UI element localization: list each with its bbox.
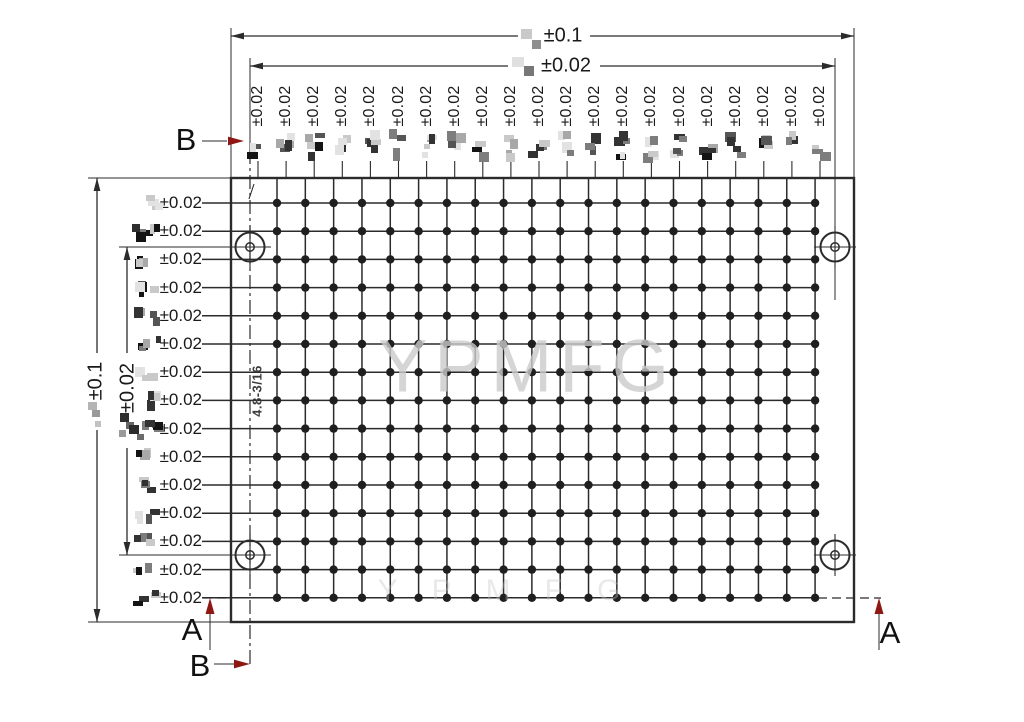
grid-hole-dot — [811, 312, 819, 320]
row-pitch-label: ±0.02 — [138, 278, 202, 298]
grid-hole-dot — [726, 453, 734, 461]
grid-hole-dot — [641, 537, 649, 545]
redacted-value — [422, 152, 428, 158]
grid-hole-dot — [556, 227, 564, 235]
column-pitch-label: ±0.02 — [277, 86, 295, 127]
grid-hole-dot — [386, 255, 394, 263]
grid-hole-dot — [273, 509, 281, 517]
dim-label-overall-width: ±0.1 — [542, 25, 585, 48]
grid-hole-dot — [754, 481, 762, 489]
grid-hole-dot — [669, 424, 677, 432]
column-pitch-label: ±0.02 — [755, 86, 773, 127]
grid-hole-dot — [556, 537, 564, 545]
grid-hole-dot — [528, 199, 536, 207]
column-pitch-label: ±0.02 — [642, 86, 660, 127]
column-pitch-label: ±0.02 — [305, 86, 323, 127]
grid-hole-dot — [499, 537, 507, 545]
grid-hole-dot — [528, 255, 536, 263]
grid-hole-dot — [613, 424, 621, 432]
grid-hole-dot — [698, 255, 706, 263]
redacted-value — [338, 138, 347, 145]
redacted-value — [479, 152, 489, 162]
column-pitch-label: ±0.02 — [614, 86, 632, 127]
grid-hole-dot — [783, 424, 791, 432]
grid-hole-dot — [613, 453, 621, 461]
grid-hole-dot — [386, 227, 394, 235]
redacted-value — [137, 434, 144, 440]
redacted-value — [145, 420, 155, 426]
redacted-value — [156, 336, 161, 344]
redacted-value — [585, 143, 595, 150]
redacted-value — [648, 151, 658, 157]
grid-hole-dot — [528, 312, 536, 320]
grid-hole-dot — [669, 481, 677, 489]
grid-hole-dot — [783, 283, 791, 291]
redacted-value — [146, 514, 152, 525]
grid-hole-dot — [726, 312, 734, 320]
grid-hole-dot — [584, 283, 592, 291]
grid-hole-dot — [414, 537, 422, 545]
grid-hole-dot — [301, 255, 309, 263]
redacted-value — [620, 152, 625, 159]
grid-hole-dot — [811, 283, 819, 291]
redacted-value — [146, 195, 155, 201]
grid-hole-dot — [754, 396, 762, 404]
grid-hole-dot — [584, 227, 592, 235]
redacted-value — [429, 134, 435, 144]
grid-hole-dot — [471, 283, 479, 291]
grid-hole-dot — [301, 312, 309, 320]
grid-hole-dot — [443, 255, 451, 263]
redacted-value — [147, 373, 158, 381]
redacted-value — [152, 590, 159, 596]
redacted-value — [619, 131, 627, 140]
grid-hole-dot — [698, 594, 706, 602]
column-pitch-label: ±0.02 — [249, 86, 267, 127]
grid-hole-dot — [443, 481, 451, 489]
grid-hole-dot — [783, 199, 791, 207]
grid-hole-dot — [358, 453, 366, 461]
section-marker-b-top: B — [176, 122, 197, 158]
grid-hole-dot — [273, 453, 281, 461]
redacted-value — [447, 131, 456, 141]
redacted-value — [510, 139, 518, 149]
grid-hole-dot — [754, 368, 762, 376]
redacted-value — [512, 57, 524, 67]
grid-hole-dot — [329, 340, 337, 348]
row-pitch-label: ±0.02 — [138, 306, 202, 326]
grid-hole-dot — [358, 199, 366, 207]
redacted-value — [455, 133, 466, 143]
redacted-value — [521, 29, 532, 39]
grid-hole-dot — [613, 227, 621, 235]
grid-hole-dot — [613, 509, 621, 517]
grid-hole-dot — [698, 312, 706, 320]
grid-hole-dot — [471, 509, 479, 517]
grid-hole-dot — [273, 537, 281, 545]
grid-hole-dot — [358, 255, 366, 263]
column-pitch-label: ±0.02 — [361, 86, 379, 127]
grid-hole-dot — [358, 481, 366, 489]
column-pitch-label: ±0.02 — [811, 86, 829, 127]
grid-hole-dot — [301, 594, 309, 602]
redacted-value — [134, 535, 141, 542]
redacted-value — [761, 136, 771, 145]
grid-hole-dot — [726, 227, 734, 235]
grid-hole-dot — [584, 565, 592, 573]
grid-hole-dot — [329, 368, 337, 376]
redacted-value — [528, 151, 538, 157]
grid-hole-dot — [273, 396, 281, 404]
grid-hole-dot — [641, 312, 649, 320]
redacted-value — [134, 307, 143, 317]
redacted-value — [92, 410, 100, 417]
redacted-value — [786, 137, 792, 146]
grid-hole-dot — [471, 312, 479, 320]
grid-hole-dot — [499, 565, 507, 573]
grid-hole-dot — [726, 424, 734, 432]
grid-hole-dot — [386, 424, 394, 432]
grid-hole-dot — [641, 255, 649, 263]
redacted-value — [143, 339, 150, 348]
redacted-value — [129, 425, 139, 434]
grid-hole-dot — [301, 283, 309, 291]
redacted-value — [737, 152, 746, 158]
column-pitch-label: ±0.02 — [671, 86, 689, 127]
redacted-value — [135, 282, 145, 292]
dim-label-overall-height: ±0.1 — [85, 360, 108, 403]
grid-hole-dot — [641, 481, 649, 489]
grid-hole-dot — [556, 255, 564, 263]
grid-hole-dot — [414, 312, 422, 320]
grid-hole-dot — [726, 340, 734, 348]
column-pitch-label: ±0.02 — [727, 86, 745, 127]
redacted-value — [307, 142, 315, 149]
grid-hole-dot — [443, 199, 451, 207]
section-b-arrow-bottom — [234, 660, 250, 669]
grid-hole-dot — [726, 509, 734, 517]
grid-hole-dot — [669, 509, 677, 517]
grid-hole-dot — [754, 565, 762, 573]
grid-hole-dot — [301, 227, 309, 235]
grid-hole-dot — [811, 255, 819, 263]
section-a-arrow-right — [875, 598, 884, 614]
grid-hole-dot — [528, 227, 536, 235]
redacted-value — [95, 421, 101, 427]
grid-hole-dot — [584, 453, 592, 461]
grid-hole-dot — [811, 368, 819, 376]
grid-hole-dot — [613, 255, 621, 263]
redacted-value — [567, 150, 574, 156]
grid-hole-dot — [471, 565, 479, 573]
grid-hole-dot — [811, 453, 819, 461]
redacted-value — [305, 134, 313, 142]
redacted-value — [136, 259, 143, 267]
grid-hole-dot — [698, 424, 706, 432]
grid-hole-dot — [669, 312, 677, 320]
redacted-value — [137, 513, 142, 524]
grid-hole-dot — [329, 537, 337, 545]
grid-hole-dot — [329, 255, 337, 263]
grid-hole-dot — [273, 481, 281, 489]
grid-hole-dot — [358, 312, 366, 320]
grid-hole-dot — [669, 453, 677, 461]
grid-hole-dot — [698, 396, 706, 404]
grid-hole-dot — [556, 509, 564, 517]
grid-hole-dot — [698, 481, 706, 489]
grid-hole-dot — [358, 537, 366, 545]
grid-hole-dot — [556, 424, 564, 432]
grid-hole-dot — [783, 396, 791, 404]
redacted-value — [276, 139, 284, 148]
section-a-arrow-left — [206, 598, 215, 614]
grid-hole-dot — [329, 565, 337, 573]
grid-hole-dot — [329, 594, 337, 602]
grid-hole-dot — [443, 227, 451, 235]
redacted-value — [250, 143, 256, 152]
column-pitch-label: ±0.02 — [699, 86, 717, 127]
grid-hole-dot — [754, 453, 762, 461]
grid-hole-dot — [669, 199, 677, 207]
watermark-faint: YPMFG — [378, 574, 655, 608]
grid-hole-dot — [783, 227, 791, 235]
grid-hole-dot — [556, 312, 564, 320]
grid-hole-dot — [443, 453, 451, 461]
redacted-value — [285, 140, 293, 151]
grid-hole-dot — [358, 424, 366, 432]
column-pitch-label: ±0.02 — [502, 86, 520, 127]
grid-hole-dot — [641, 424, 649, 432]
grid-hole-dot — [613, 565, 621, 573]
grid-hole-dot — [301, 537, 309, 545]
grid-hole-dot — [414, 424, 422, 432]
column-pitch-label: ±0.02 — [390, 86, 408, 127]
grid-hole-dot — [386, 537, 394, 545]
dimension-arrowhead — [124, 542, 131, 555]
grid-hole-dot — [301, 368, 309, 376]
grid-hole-dot — [414, 453, 422, 461]
section-marker-b-bottom: B — [190, 648, 211, 684]
grid-hole-dot — [556, 453, 564, 461]
grid-hole-dot — [443, 312, 451, 320]
grid-hole-dot — [499, 255, 507, 263]
grid-hole-dot — [698, 199, 706, 207]
grid-hole-dot — [754, 312, 762, 320]
grid-hole-dot — [273, 594, 281, 602]
redacted-value — [133, 601, 143, 607]
grid-hole-dot — [386, 283, 394, 291]
grid-hole-dot — [584, 537, 592, 545]
grid-hole-dot — [783, 594, 791, 602]
grid-hole-dot — [613, 481, 621, 489]
grid-hole-dot — [811, 396, 819, 404]
grid-hole-dot — [641, 565, 649, 573]
grid-hole-dot — [556, 481, 564, 489]
grid-hole-dot — [528, 424, 536, 432]
redacted-value — [389, 129, 397, 138]
grid-hole-dot — [641, 283, 649, 291]
grid-hole-dot — [783, 481, 791, 489]
grid-hole-dot — [726, 255, 734, 263]
grid-hole-dot — [499, 227, 507, 235]
dim-label-hole-span-width: ±0.02 — [539, 55, 593, 78]
grid-hole-dot — [273, 424, 281, 432]
redacted-value — [679, 136, 687, 142]
grid-hole-dot — [414, 565, 422, 573]
grid-hole-dot — [443, 537, 451, 545]
grid-hole-dot — [556, 199, 564, 207]
grid-hole-dot — [698, 368, 706, 376]
grid-hole-dot — [584, 255, 592, 263]
grid-hole-dot — [358, 340, 366, 348]
redacted-value — [475, 141, 486, 148]
redacted-value — [132, 224, 140, 232]
grid-hole-dot — [584, 199, 592, 207]
grid-hole-dot — [273, 283, 281, 291]
grid-hole-dot — [613, 283, 621, 291]
grid-hole-dot — [754, 537, 762, 545]
column-pitch-label: ±0.02 — [558, 86, 576, 127]
grid-hole-dot — [528, 537, 536, 545]
section-marker-a-left: A — [182, 612, 203, 648]
grid-hole-dot — [358, 227, 366, 235]
grid-hole-dot — [301, 199, 309, 207]
grid-hole-dot — [301, 396, 309, 404]
grid-hole-dot — [329, 396, 337, 404]
grid-hole-dot — [811, 424, 819, 432]
redacted-value — [532, 40, 541, 49]
redacted-value — [315, 142, 323, 152]
grid-hole-dot — [783, 509, 791, 517]
grid-hole-dot — [386, 509, 394, 517]
grid-hole-dot — [471, 453, 479, 461]
grid-hole-dot — [783, 537, 791, 545]
grid-hole-dot — [556, 283, 564, 291]
grid-hole-dot — [499, 283, 507, 291]
grid-hole-dot — [358, 368, 366, 376]
grid-hole-dot — [443, 424, 451, 432]
grid-hole-dot — [698, 537, 706, 545]
grid-hole-dot — [726, 594, 734, 602]
column-pitch-label: ±0.02 — [586, 86, 604, 127]
redacted-value — [370, 130, 379, 141]
grid-hole-dot — [783, 340, 791, 348]
grid-hole-dot — [811, 481, 819, 489]
redacted-value — [148, 391, 153, 399]
grid-hole-dot — [783, 565, 791, 573]
grid-hole-dot — [811, 199, 819, 207]
grid-hole-dot — [386, 312, 394, 320]
redacted-value — [247, 152, 258, 159]
column-pitch-label: ±0.02 — [530, 86, 548, 127]
grid-hole-dot — [414, 255, 422, 263]
grid-hole-dot — [556, 565, 564, 573]
redacted-value — [150, 286, 159, 293]
grid-hole-dot — [669, 594, 677, 602]
grid-hole-dot — [584, 424, 592, 432]
redacted-value — [120, 413, 129, 422]
grid-hole-dot — [386, 453, 394, 461]
grid-hole-dot — [471, 255, 479, 263]
grid-hole-dot — [726, 283, 734, 291]
grid-hole-dot — [698, 565, 706, 573]
redacted-value — [424, 144, 430, 149]
grid-hole-dot — [641, 199, 649, 207]
redacted-value — [146, 539, 154, 547]
grid-hole-dot — [726, 199, 734, 207]
grid-hole-dot — [641, 453, 649, 461]
grid-hole-dot — [414, 199, 422, 207]
column-pitch-label: ±0.02 — [474, 86, 492, 127]
grid-hole-dot — [641, 227, 649, 235]
section-marker-a-right: A — [880, 615, 901, 651]
grid-hole-dot — [783, 368, 791, 376]
grid-hole-dot — [811, 340, 819, 348]
grid-hole-dot — [471, 227, 479, 235]
grid-hole-dot — [726, 368, 734, 376]
grid-hole-dot — [584, 509, 592, 517]
redacted-value — [727, 137, 735, 147]
grid-hole-dot — [528, 565, 536, 573]
grid-hole-dot — [528, 453, 536, 461]
grid-hole-dot — [754, 255, 762, 263]
grid-hole-dot — [273, 368, 281, 376]
grid-hole-dot — [528, 481, 536, 489]
dimension-arrowhead — [94, 609, 101, 622]
redacted-value — [155, 203, 163, 210]
redacted-value — [472, 147, 482, 152]
redacted-value — [524, 66, 534, 76]
redacted-value — [136, 232, 146, 243]
grid-hole-dot — [414, 481, 422, 489]
grid-hole-dot — [329, 283, 337, 291]
grid-hole-dot — [358, 594, 366, 602]
dimension-arrowhead — [822, 63, 835, 70]
grid-hole-dot — [273, 255, 281, 263]
grid-hole-dot — [499, 424, 507, 432]
grid-hole-dot — [669, 565, 677, 573]
grid-hole-dot — [443, 565, 451, 573]
dimension-arrowhead — [250, 63, 263, 70]
redacted-value — [88, 402, 97, 410]
grid-hole-dot — [329, 509, 337, 517]
grid-hole-dot — [329, 199, 337, 207]
redacted-value — [136, 450, 142, 457]
redacted-value — [142, 480, 149, 486]
grid-hole-dot — [726, 537, 734, 545]
redacted-value — [506, 153, 515, 162]
grid-hole-dot — [301, 424, 309, 432]
grid-hole-dot — [754, 283, 762, 291]
grid-hole-dot — [358, 565, 366, 573]
grid-hole-dot — [698, 283, 706, 291]
redacted-value — [335, 145, 343, 155]
redacted-value — [393, 148, 399, 156]
grid-hole-dot — [358, 396, 366, 404]
redacted-value — [702, 153, 712, 160]
grid-hole-dot — [754, 199, 762, 207]
grid-hole-dot — [386, 565, 394, 573]
grid-hole-dot — [273, 312, 281, 320]
grid-hole-dot — [698, 509, 706, 517]
column-pitch-label: ±0.02 — [333, 86, 351, 127]
redacted-value — [315, 133, 325, 138]
part-note: 4.8-3/16 — [250, 365, 265, 417]
section-b-arrow-top — [228, 137, 244, 146]
watermark: YPMFG — [378, 324, 676, 409]
grid-hole-dot — [613, 537, 621, 545]
grid-hole-dot — [669, 283, 677, 291]
